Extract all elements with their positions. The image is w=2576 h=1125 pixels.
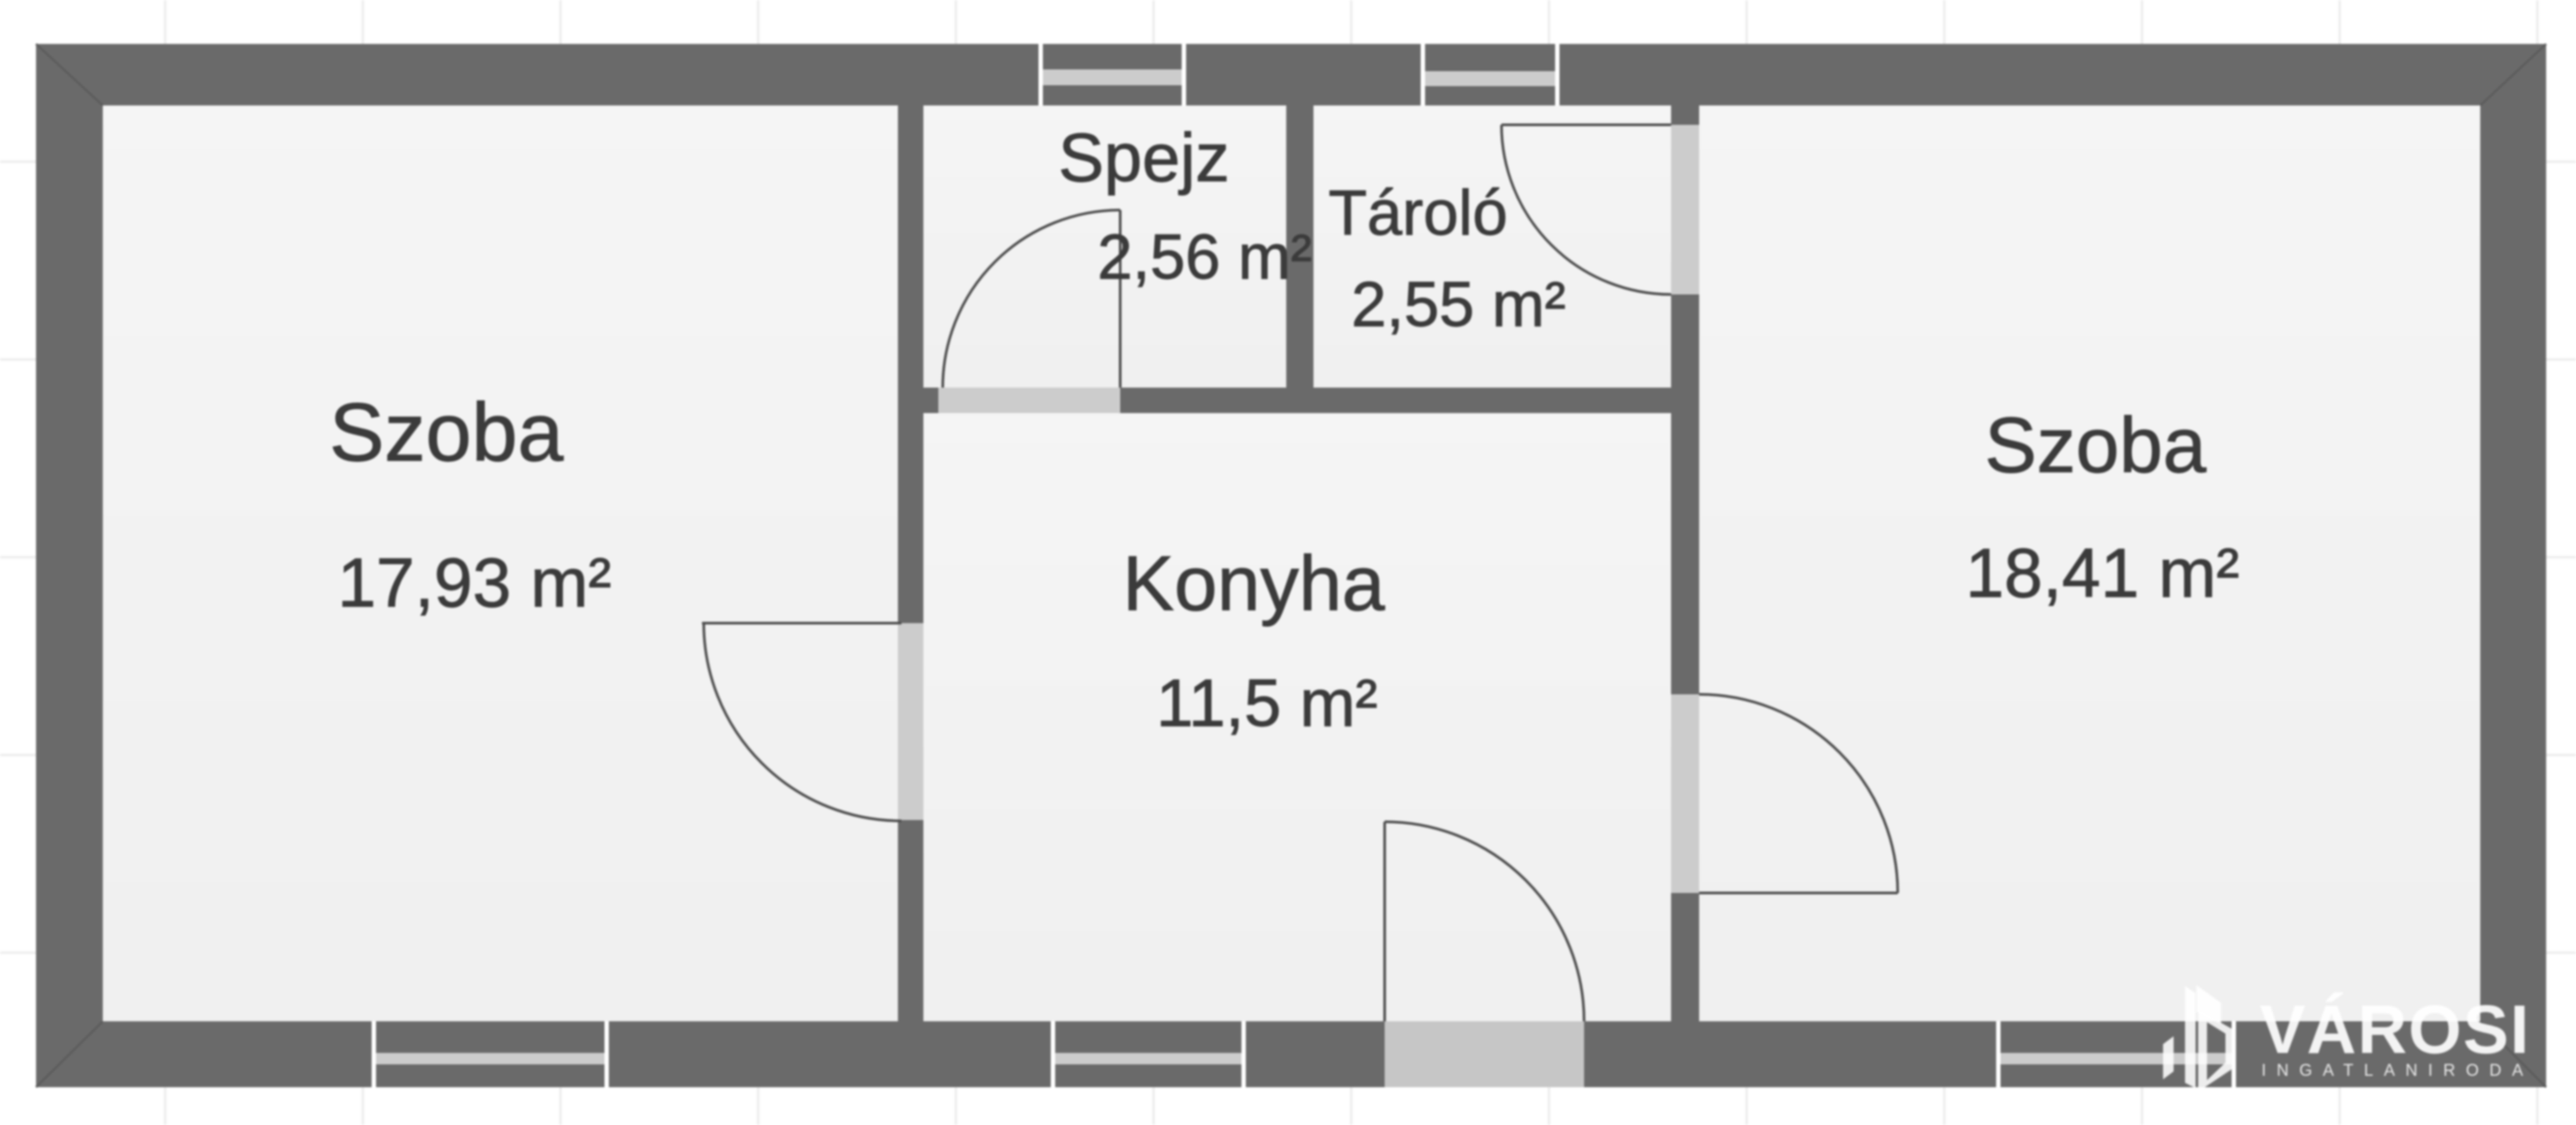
svg-text:2,56 m²: 2,56 m² <box>1097 222 1312 293</box>
svg-text:17,93 m²: 17,93 m² <box>337 543 611 621</box>
svg-text:Tároló: Tároló <box>1328 178 1508 249</box>
svg-text:18,41 m²: 18,41 m² <box>1965 533 2240 612</box>
svg-text:INGATLANIRODA: INGATLANIRODA <box>2261 1062 2534 1080</box>
svg-text:Szoba: Szoba <box>1985 401 2207 489</box>
svg-text:Konyha: Konyha <box>1123 540 1386 627</box>
svg-text:Spejz: Spejz <box>1058 119 1229 196</box>
svg-text:Szoba: Szoba <box>329 386 564 478</box>
svg-text:2,55 m²: 2,55 m² <box>1351 270 1566 340</box>
svg-text:VÁROSI: VÁROSI <box>2260 991 2530 1068</box>
svg-text:11,5 m²: 11,5 m² <box>1156 666 1378 741</box>
